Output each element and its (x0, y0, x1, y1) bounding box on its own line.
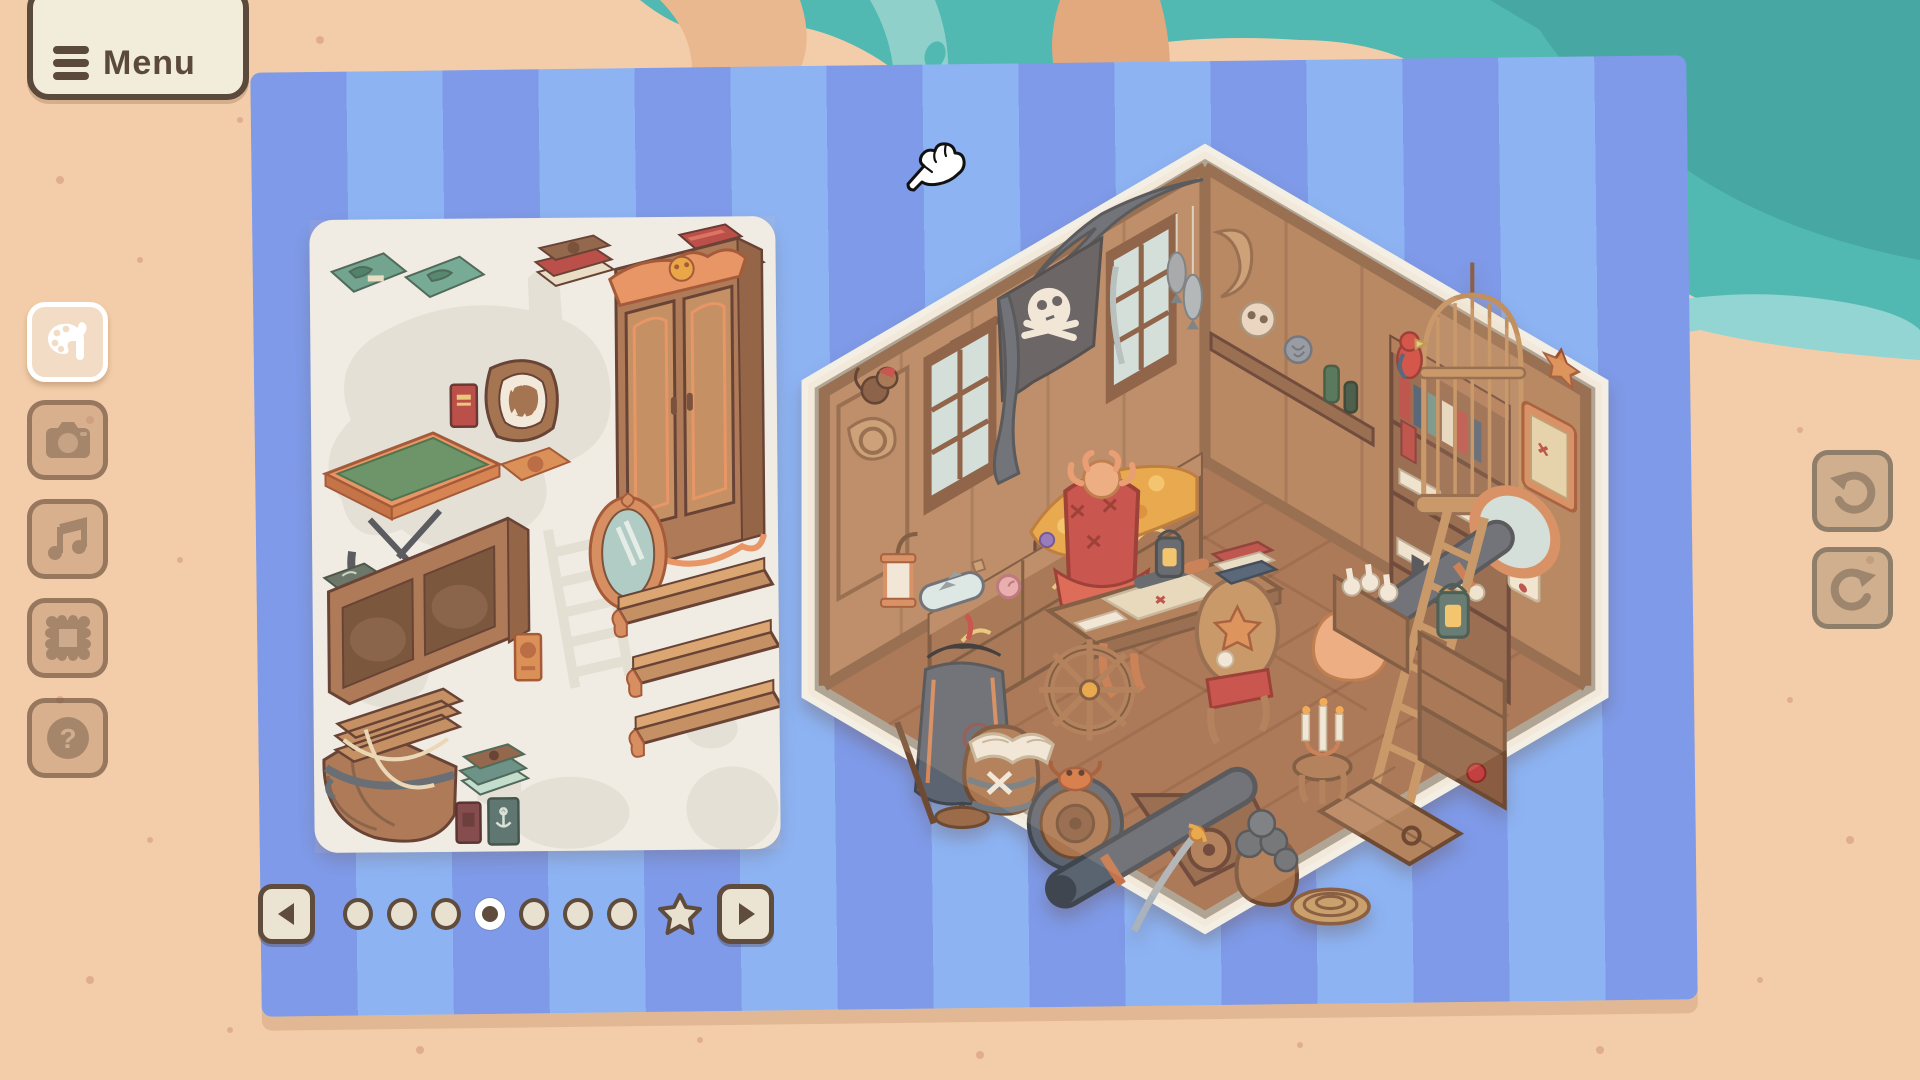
pirate-room-canvas[interactable] (800, 135, 1610, 945)
sidebar-button-decorate[interactable] (27, 302, 108, 382)
redo-arrow-icon (1828, 563, 1878, 613)
sticker-sheet-panel[interactable] (309, 216, 781, 853)
rope-coil (1292, 889, 1369, 923)
page-dot-1[interactable] (343, 898, 373, 930)
sticker-page-pager (258, 878, 778, 950)
undo-button[interactable] (1812, 450, 1893, 532)
sidebar-button-photo[interactable] (27, 400, 108, 480)
palette-brush-icon (42, 316, 94, 368)
camera-icon (42, 414, 94, 466)
page-dot-4[interactable] (475, 898, 505, 930)
page-dots (343, 898, 637, 930)
page-dot-3[interactable] (431, 898, 461, 930)
hamburger-icon (53, 46, 89, 80)
cannon-muzzle (1046, 875, 1076, 905)
star-page-icon[interactable] (657, 892, 703, 936)
redo-button[interactable] (1812, 547, 1893, 629)
sidebar-button-music[interactable] (27, 499, 108, 579)
next-page-button[interactable] (717, 884, 774, 944)
music-note-icon (42, 513, 94, 565)
question-mark-icon: ? (42, 712, 94, 764)
right-triangle-icon (733, 901, 759, 927)
page-dot-5[interactable] (519, 898, 549, 930)
sheet-haze (309, 216, 781, 853)
sidebar-button-frame[interactable] (27, 598, 108, 678)
picture-frame-icon (42, 612, 94, 664)
menu-button-label: Menu (103, 46, 196, 80)
previous-page-button[interactable] (258, 884, 315, 944)
undo-arrow-icon (1828, 466, 1878, 516)
page-dot-7[interactable] (607, 898, 637, 930)
menu-button[interactable]: Menu (27, 0, 249, 100)
left-triangle-icon (274, 901, 300, 927)
page-dot-6[interactable] (563, 898, 593, 930)
svg-text:?: ? (59, 723, 76, 754)
sidebar-button-help[interactable]: ? (27, 698, 108, 778)
page-dot-2[interactable] (387, 898, 417, 930)
